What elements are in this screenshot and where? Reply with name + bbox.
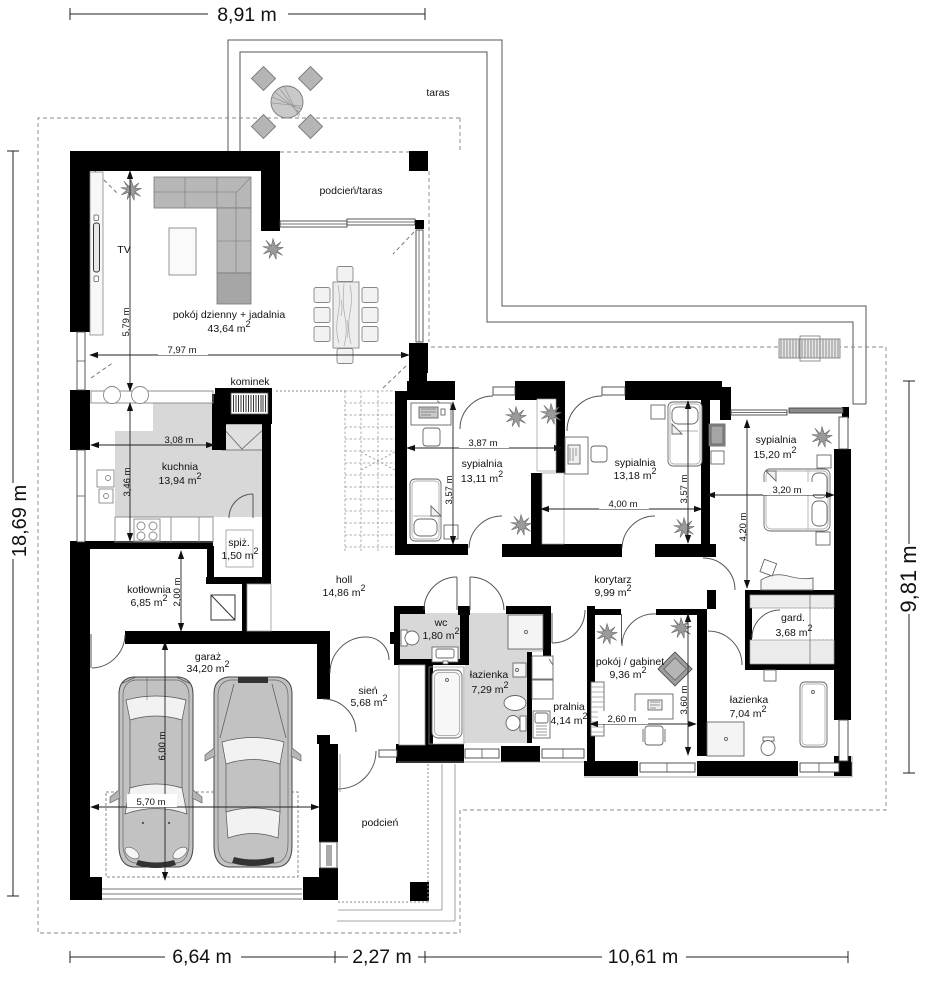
svg-text:kominek: kominek (230, 376, 270, 388)
svg-text:spiż.: spiż. (228, 537, 250, 549)
svg-text:pokój dzienny + jadalnia: pokój dzienny + jadalnia (173, 309, 286, 321)
svg-text:holl: holl (336, 574, 352, 586)
svg-text:TV: TV (117, 244, 130, 256)
svg-text:gard.: gard. (781, 612, 805, 624)
svg-text:sypialnia: sypialnia (615, 457, 656, 469)
svg-text:9,81 m: 9,81 m (896, 545, 921, 612)
svg-text:7,97 m: 7,97 m (167, 345, 196, 356)
svg-text:3,87 m: 3,87 m (468, 438, 497, 449)
svg-text:wc: wc (434, 617, 448, 629)
svg-text:18,69 m: 18,69 m (9, 485, 31, 557)
svg-text:6,64 m: 6,64 m (172, 946, 232, 968)
svg-text:podcień/taras: podcień/taras (319, 185, 382, 197)
svg-text:3,60 m: 3,60 m (679, 685, 690, 714)
svg-text:3,57 m: 3,57 m (444, 475, 455, 504)
svg-text:8,91 m: 8,91 m (217, 4, 277, 26)
svg-text:10,61 m: 10,61 m (608, 946, 678, 968)
svg-text:sypialnia: sypialnia (462, 458, 503, 470)
svg-text:4,00 m: 4,00 m (608, 499, 637, 510)
svg-text:3,08 m: 3,08 m (164, 435, 193, 446)
svg-text:3,20 m: 3,20 m (772, 485, 801, 496)
svg-text:4,20 m: 4,20 m (738, 512, 749, 541)
svg-text:kuchnia: kuchnia (162, 461, 198, 473)
svg-text:2,27 m: 2,27 m (352, 946, 412, 968)
svg-text:5,70 m: 5,70 m (136, 797, 165, 808)
svg-text:3,57 m: 3,57 m (679, 474, 690, 503)
svg-text:sypialnia: sypialnia (756, 434, 797, 446)
svg-text:pralnia: pralnia (553, 701, 585, 713)
svg-text:garaż: garaż (195, 651, 221, 663)
svg-text:3,46 m: 3,46 m (122, 467, 133, 496)
svg-text:pokój / gabinet: pokój / gabinet (596, 656, 664, 668)
svg-text:taras: taras (426, 87, 449, 99)
svg-text:podcień: podcień (362, 817, 399, 829)
svg-text:sień: sień (358, 685, 377, 697)
svg-text:6,00 m: 6,00 m (157, 731, 168, 760)
svg-text:5,79 m: 5,79 m (121, 307, 132, 336)
svg-text:2,60 m: 2,60 m (607, 714, 636, 725)
svg-text:2,00 m: 2,00 m (172, 577, 183, 606)
